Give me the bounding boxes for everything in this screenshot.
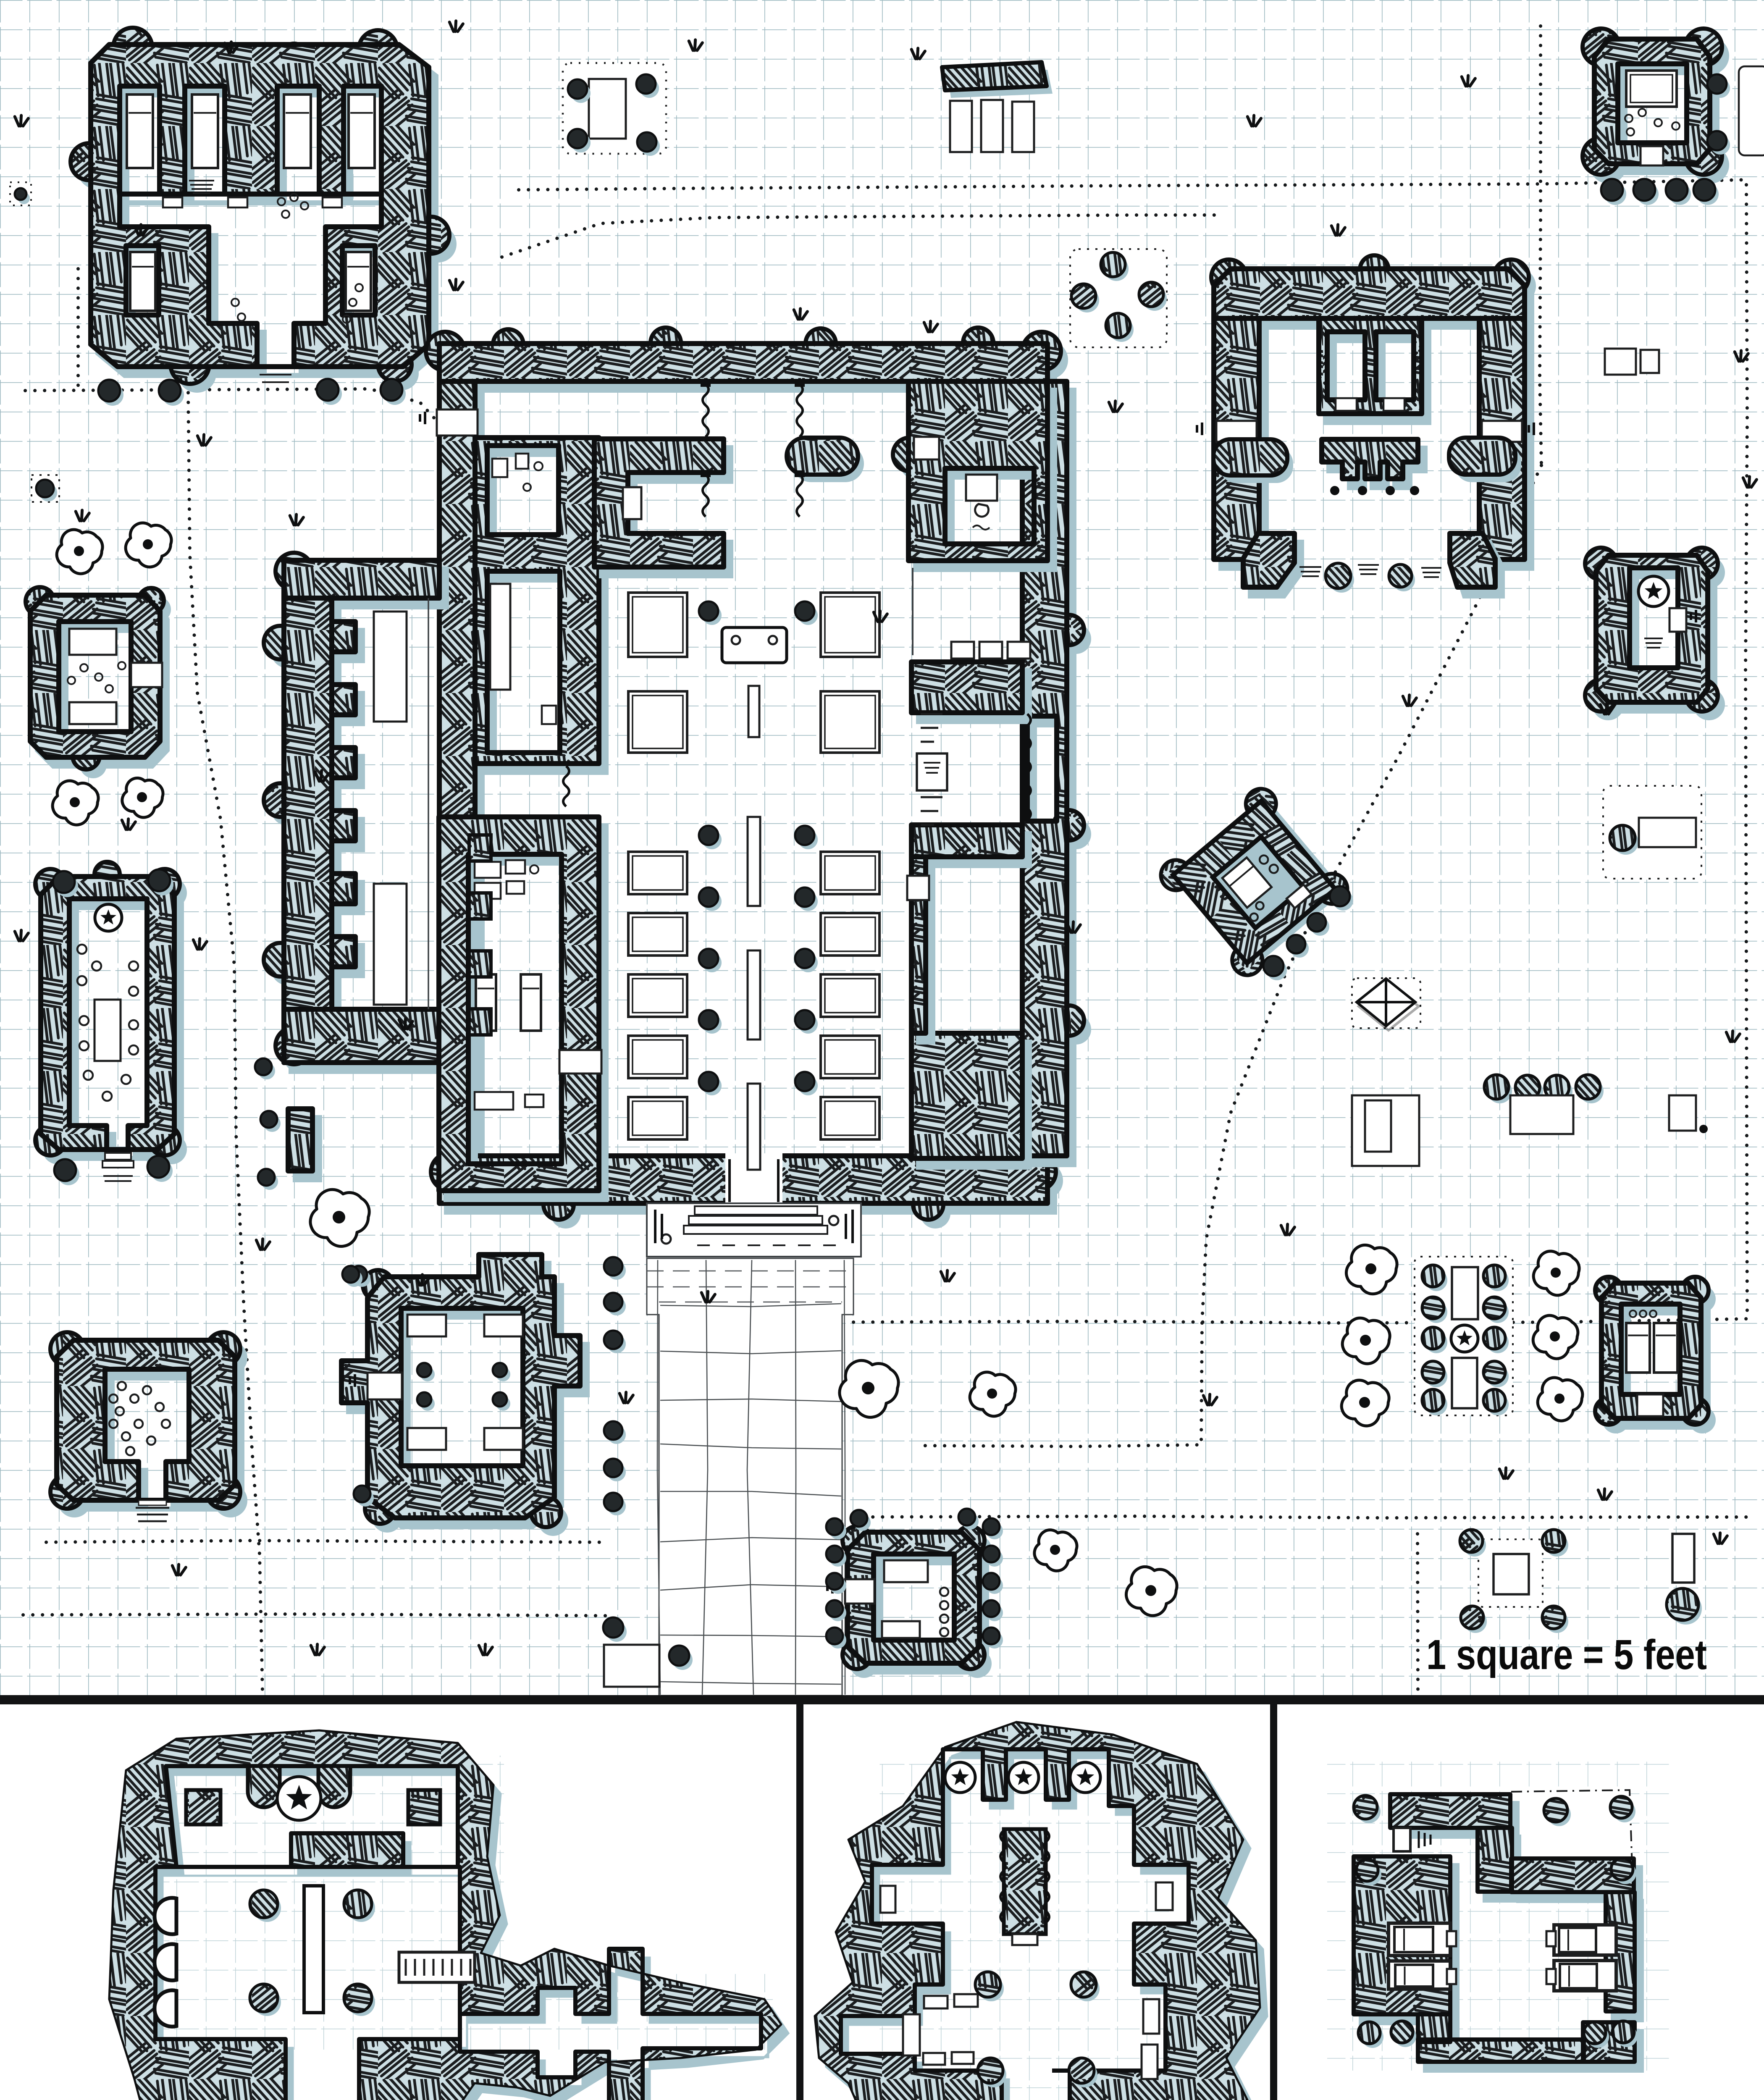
svg-text:1 square = 5 feet: 1 square = 5 feet — [1426, 1631, 1707, 1678]
